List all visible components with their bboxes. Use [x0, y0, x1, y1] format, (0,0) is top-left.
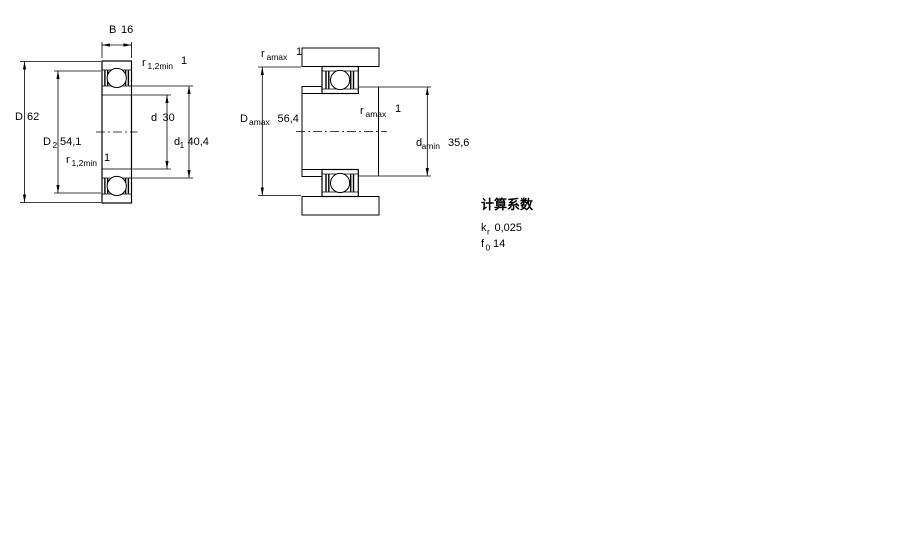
arrowhead: [261, 67, 264, 75]
extension-line-d1: [133, 86, 194, 178]
dim-label-ramax-top-subscript: amax: [267, 52, 289, 62]
dim-label-Damax-symbol: D: [240, 113, 248, 125]
seal-left: [325, 174, 326, 192]
dim-label-B-symbol: B: [109, 24, 116, 36]
arrowhead: [23, 195, 26, 203]
factor-kr-subscript: r: [487, 227, 490, 237]
dim-label-ramax-mid-subscript: amax: [366, 109, 388, 119]
dim-label-D2-symbol: D: [43, 136, 51, 148]
arrowhead: [56, 185, 59, 193]
ball-bottom: [331, 173, 350, 192]
arrowhead: [187, 170, 190, 178]
housing-block-top: [302, 48, 379, 67]
dim-label-d1-value: 40,4: [188, 136, 209, 148]
dim-label-ramax-mid-value: 1: [395, 103, 401, 115]
dim-label-D2-subscript: 2: [53, 140, 58, 150]
factor-kr-value: 0,025: [495, 222, 523, 234]
bearing-mounting-view: r amax 1 D amax 56,4 r amax 1 d amin 35,…: [240, 46, 469, 215]
dim-label-ramax-mid-symbol: r: [360, 105, 364, 117]
dim-label-Damax-value: 56,4: [278, 113, 299, 125]
seal-right: [128, 178, 129, 193]
arrowhead: [102, 43, 110, 46]
extension-line-d: [133, 95, 172, 169]
dim-label-d-symbol: d: [151, 112, 157, 124]
seal-left: [325, 71, 326, 89]
arrowhead: [426, 168, 429, 176]
seal-right: [350, 71, 351, 89]
dim-label-r12-bottom-value: 1: [104, 152, 110, 164]
seal-left: [104, 70, 105, 85]
shaft-shoulder-top: [302, 87, 322, 94]
seal-right: [353, 174, 354, 192]
arrowhead: [187, 86, 190, 94]
dim-label-damin-value: 35,6: [448, 137, 469, 149]
dim-label-r12-top-subscript: 1,2min: [148, 61, 174, 71]
page: { "cross_section_view": { "width_B": {"s…: [0, 0, 900, 560]
seal-left: [104, 178, 105, 193]
ball-top: [331, 70, 350, 89]
dim-label-ramax-top-value: 1: [296, 46, 302, 58]
bearing-technical-drawing: B 16 r 1,2min 1 D 62 D 2 54,1 r 1,2min 1…: [0, 0, 900, 560]
arrowhead: [165, 95, 168, 103]
arrowhead: [56, 71, 59, 79]
seal-left: [328, 71, 329, 89]
dim-label-D-value: 62: [27, 111, 39, 123]
dim-label-D2-value: 54,1: [60, 136, 81, 148]
seal-right: [128, 70, 129, 85]
dim-label-r12-top-symbol: r: [142, 57, 146, 69]
dim-label-damin-subscript: amin: [422, 141, 441, 151]
extension-line-Damax: [258, 67, 301, 196]
extension-line-D2: [54, 71, 101, 193]
calc-factors-title: 计算系数: [481, 197, 534, 212]
bearing-cross-section-view: B 16 r 1,2min 1 D 62 D 2 54,1 r 1,2min 1…: [15, 24, 209, 203]
dim-label-d-value: 30: [163, 112, 175, 124]
dim-label-D-symbol: D: [15, 111, 23, 123]
arrowhead: [261, 188, 264, 196]
ball-top: [107, 68, 126, 87]
shaft-shoulder-bottom: [302, 170, 322, 177]
factor-f0-value: 14: [493, 238, 505, 250]
seal-right: [350, 174, 351, 192]
factor-f0-symbol: f: [481, 238, 485, 250]
dim-label-d1-subscript: 1: [180, 140, 185, 150]
dim-label-r12-top-value: 1: [181, 55, 187, 67]
dim-label-B-value: 16: [121, 24, 133, 36]
arrowhead: [23, 62, 26, 70]
ball-bottom: [107, 176, 126, 195]
calculation-factors-block: 计算系数 k r 0,025 f 0 14: [481, 197, 534, 253]
dim-label-r12-bottom-symbol: r: [66, 154, 70, 166]
housing-block-bottom: [302, 197, 379, 216]
arrowhead: [165, 161, 168, 169]
dim-label-r12-bottom-subscript: 1,2min: [72, 158, 98, 168]
seal-right: [353, 71, 354, 89]
extension-line-D: [20, 62, 101, 203]
arrowhead: [426, 87, 429, 95]
factor-f0-subscript: 0: [486, 243, 491, 253]
arrowhead: [124, 43, 132, 46]
dim-label-ramax-top-symbol: r: [261, 48, 265, 60]
seal-left: [328, 174, 329, 192]
dim-label-Damax-subscript: amax: [249, 117, 271, 127]
